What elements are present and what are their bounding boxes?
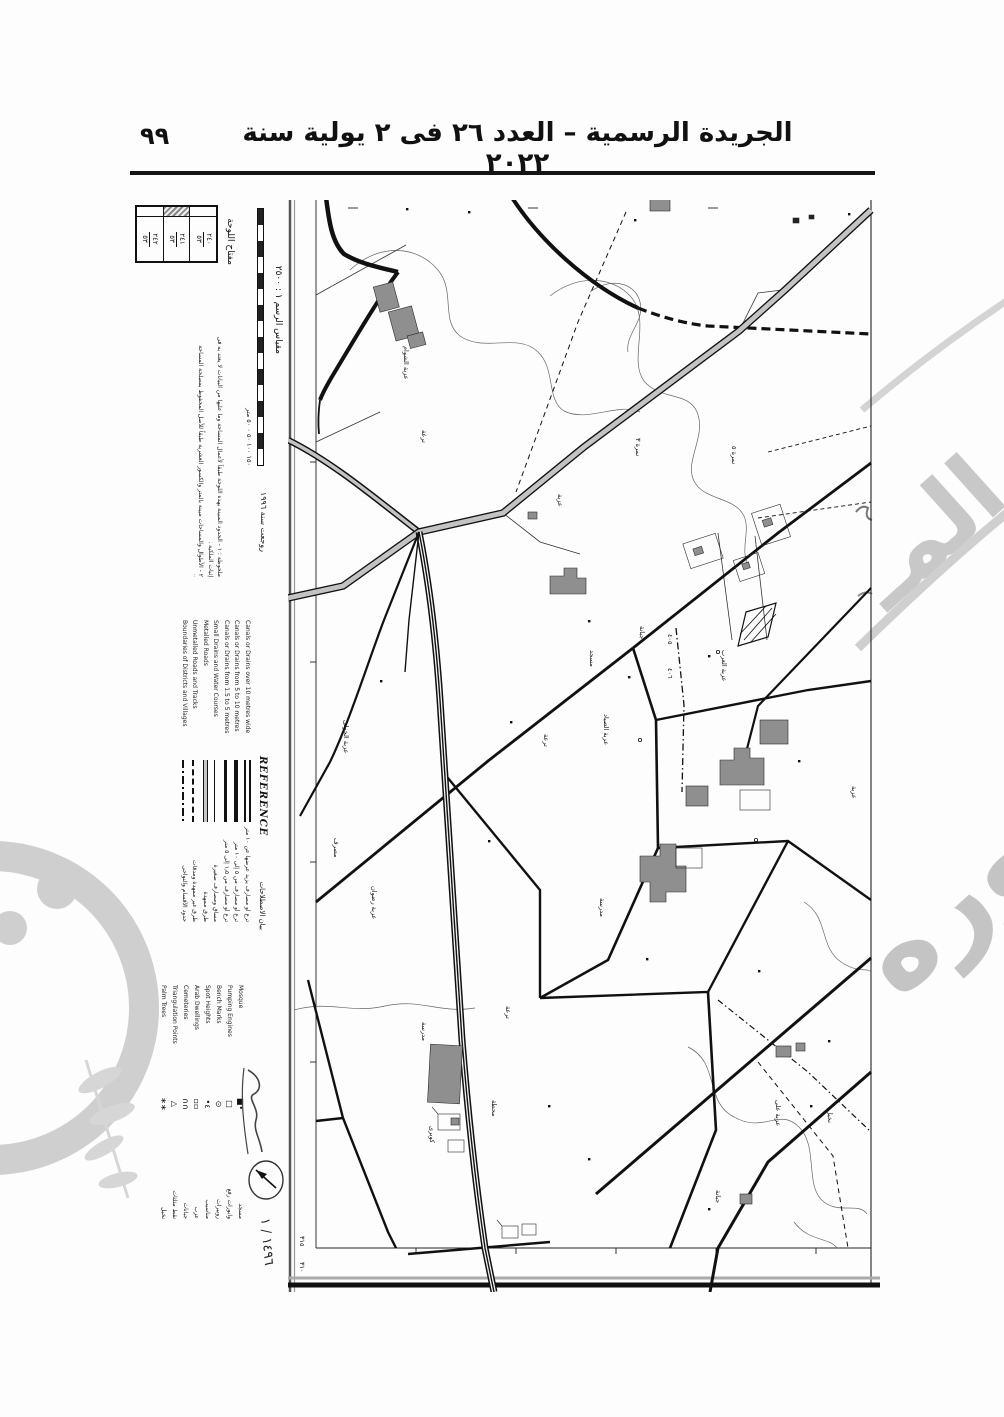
scale-tick-labels: ١٥٠ ١٠٠ ٥٠ ٠ ٥٠ متر <box>245 208 253 466</box>
reference-subtitle: بيان الاصطلاحات <box>258 840 266 930</box>
survey-map: عزبة الشوام ترعة عزبة الخولى مصرف عزبة ر… <box>288 200 880 1292</box>
index-table-header <box>137 207 216 217</box>
sheet-index-table: ٢٤٠٥٣ ٢٤١٥٣ ٢٤٢٥٣ <box>135 205 218 263</box>
place-label: مدرسة <box>420 1022 428 1041</box>
legend-row: Canals or Drains from 5 to 10 metres ترع… <box>233 620 242 932</box>
place-label: محطة <box>490 1100 498 1117</box>
legend-row: Small Drains and Water Courses مساقٍ ومص… <box>212 620 221 932</box>
watermark-logo <box>0 856 144 1198</box>
canal-wide-symbol <box>244 760 251 822</box>
place-label: عزبة العرب <box>720 650 728 682</box>
heavy-boundaries <box>308 463 871 1292</box>
place-label: عزبة الشوام <box>402 346 410 380</box>
scale-revision-note: روجعت سنة ١٩٩٦ <box>259 472 268 552</box>
place-label: جبانة <box>714 1190 722 1203</box>
cemetery-icon: ∩∩ <box>181 1081 190 1127</box>
place-label: مدرسة <box>598 898 606 917</box>
index-table-cell: ٢٤٢٥٣ <box>137 217 163 261</box>
legend-row: Metalled Roads طرق ممهدة <box>201 620 210 932</box>
spot-height-label: ٤٠٥ <box>666 634 674 645</box>
track-symbol <box>193 760 195 822</box>
legend-row: Arab Dwellings ▫▫ عزب <box>192 985 201 1235</box>
index-table-cell: ٢٤٠٥٣ <box>189 217 216 261</box>
legend-row: Bench Marks ⊙ روبيرات <box>214 985 223 1235</box>
reference-title: REFERENCE <box>257 756 268 836</box>
place-label: عزبة <box>850 786 858 799</box>
north-arrow-icon <box>246 1158 286 1202</box>
triangulation-icon: △ <box>170 1081 179 1127</box>
place-label: عزبة رضوان <box>370 886 378 920</box>
place-label: ترعة <box>504 1006 512 1019</box>
legend-row: Cemeteries ∩∩ جبانات <box>181 985 190 1235</box>
legend-row: Triangulation Points △ نقط مثلثات <box>170 985 179 1235</box>
place-label: نخيل <box>826 1110 834 1123</box>
sheet-number: ١٤٩٦ / ١ <box>257 1217 276 1266</box>
key-table-label: مفتاح اللوحة <box>225 205 235 265</box>
canal-mid-symbol <box>234 760 238 822</box>
grid-tick-label: ٣١٠ <box>298 1262 306 1272</box>
place-label: مسجد <box>588 650 596 667</box>
metalled-road-symbol <box>203 760 208 822</box>
benchmark-icon: ⊙ <box>214 1081 223 1127</box>
legend-row: Canals or Drains from 1.5 to 5 metres تر… <box>222 620 231 932</box>
scale-bar <box>257 208 264 466</box>
spot-height-icon: •٤ <box>203 1081 212 1127</box>
survey-notes: ملحوظة : ١ - الحدود المبينة بهذه اللوحة … <box>194 335 224 577</box>
hatched-enclosure <box>738 603 776 646</box>
place-label: كوبرى <box>428 1126 436 1144</box>
gazette-page: صوره المـ الجريدة الرسمية – العدد ٢٦ فى … <box>0 0 1004 1417</box>
place-label: ترعة <box>420 430 428 443</box>
index-table-cell: ٢٤١٥٣ <box>163 217 190 261</box>
place-label: عزبة على <box>774 1100 782 1126</box>
place-label: عزبة <box>556 494 564 507</box>
handwritten-signature <box>240 1068 266 1158</box>
map-frame <box>288 200 880 1292</box>
grid-tick-label: ٣١٥ <box>298 1236 306 1247</box>
dwelling-icon: ▫▫ <box>192 1081 201 1127</box>
place-label: نمرة ٣ <box>634 438 642 456</box>
small-drain-symbol <box>214 760 215 822</box>
map-labels: عزبة الشوام ترعة عزبة الخولى مصرف عزبة ر… <box>298 346 858 1272</box>
legend-row: Pumping Engines □ وابورات رفع <box>225 985 234 1235</box>
scale-caption: مقياس الرسم ١ : ٢٥٠٠ <box>273 214 283 354</box>
note-line: ملحوظة : ١ - الحدود المبينة بهذه اللوحة … <box>205 335 224 577</box>
legend-row: Canals or Drains over 10 metres wide ترع… <box>243 620 252 932</box>
spot-height-label: ٤٠٦ <box>666 668 674 679</box>
legend-row: Spot Heights •٤ مناسيب <box>203 985 212 1235</box>
legend-row: Unmetalled Roads and Tracks طرق غير ممهد… <box>191 620 200 932</box>
canal-small-symbol <box>224 760 227 822</box>
place-label: عزبة الخولى <box>342 720 350 754</box>
place-label: نمرة ٥ <box>730 446 738 464</box>
hamlet-building-cluster <box>373 278 426 354</box>
station-building <box>428 1044 463 1104</box>
legend-row: Boundaries of Districts and Villages حدو… <box>180 620 189 932</box>
palm-icon: ∗∗ <box>159 1081 168 1127</box>
school-building <box>640 844 686 902</box>
place-label: عزبة الصياد <box>602 714 610 745</box>
place-label: جبانة <box>638 626 646 639</box>
pump-icon: □ <box>225 1081 234 1127</box>
map-marginalia: مقياس الرسم ١ : ٢٥٠٠ ١٥٠ ١٠٠ ٥٠ ٠ ٥٠ متر… <box>128 200 290 1292</box>
place-label: مصرف <box>332 838 340 857</box>
note-line: ٢ - الأطوال والمساحات مبينة بالمتر والكس… <box>194 335 205 577</box>
boundary-symbol <box>182 760 184 822</box>
contour-lines <box>294 250 871 1248</box>
legend-row: Palm Trees ∗∗ نخيل <box>159 985 168 1235</box>
place-label: ترعة <box>542 734 550 747</box>
railway <box>300 532 494 1292</box>
